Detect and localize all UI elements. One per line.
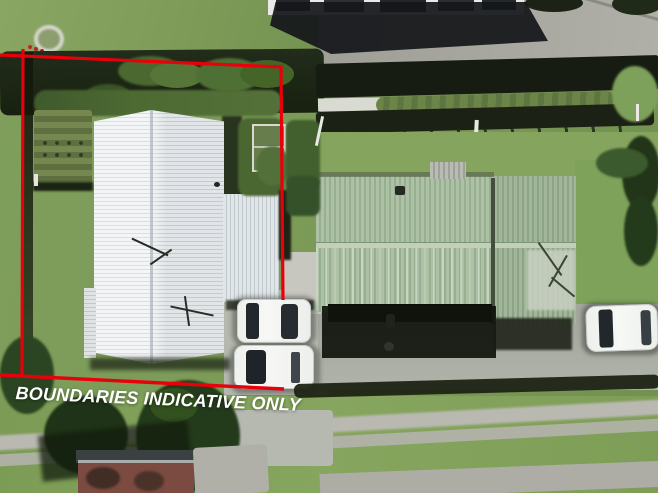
garden-fence-shadow [33, 182, 93, 191]
green-roof-top-edge-shadow [316, 172, 494, 177]
parked-car-1 [237, 299, 311, 343]
white-fence-post [34, 174, 38, 186]
car-windshield [246, 303, 259, 339]
retaining-wall-lip [318, 97, 380, 111]
roof-vent-dot [214, 182, 220, 187]
parked-car-3 [585, 304, 658, 352]
main-house-roof [94, 110, 224, 364]
car-windshield [246, 350, 266, 384]
path-beside-building [193, 444, 269, 493]
fire-pit-ring [34, 25, 64, 53]
car-rear-window [291, 352, 300, 383]
back-garden-bushes [256, 146, 290, 186]
boundary-bushes [286, 176, 320, 216]
roof-slope-shading [94, 110, 224, 364]
green-roof-section-divider [491, 178, 495, 324]
object-in-shadow [384, 342, 394, 351]
house-west-extension-roof [84, 288, 96, 358]
parked-car-2 [234, 345, 314, 389]
wall-dapple-shadow [86, 467, 120, 489]
red-flower-patch [28, 45, 32, 49]
hedge-bush [240, 60, 294, 88]
street-building-wall [78, 463, 194, 493]
roof-skylight-panel [430, 162, 466, 179]
white-fence-post [636, 104, 639, 121]
green-building-shadow [494, 318, 572, 350]
chimney-vent [395, 186, 405, 195]
tree-canopy [596, 148, 648, 178]
left-boundary-fence-shadow [23, 52, 33, 384]
car-rear-window [281, 304, 298, 339]
car-windshield [598, 309, 613, 347]
house-south-eave-shadow [90, 358, 230, 370]
tree-canopy [624, 196, 658, 266]
green-building-shadow [322, 306, 496, 358]
wall-dapple-shadow [134, 471, 164, 491]
green-roof-streaks [316, 247, 494, 311]
object-in-shadow [386, 314, 395, 328]
garage-wing-roof [223, 194, 279, 302]
car-rear-window [640, 310, 651, 345]
garden-seedling-rows [40, 138, 86, 162]
aerial-photo: BOUNDARIES INDICATIVE ONLY [0, 0, 658, 493]
